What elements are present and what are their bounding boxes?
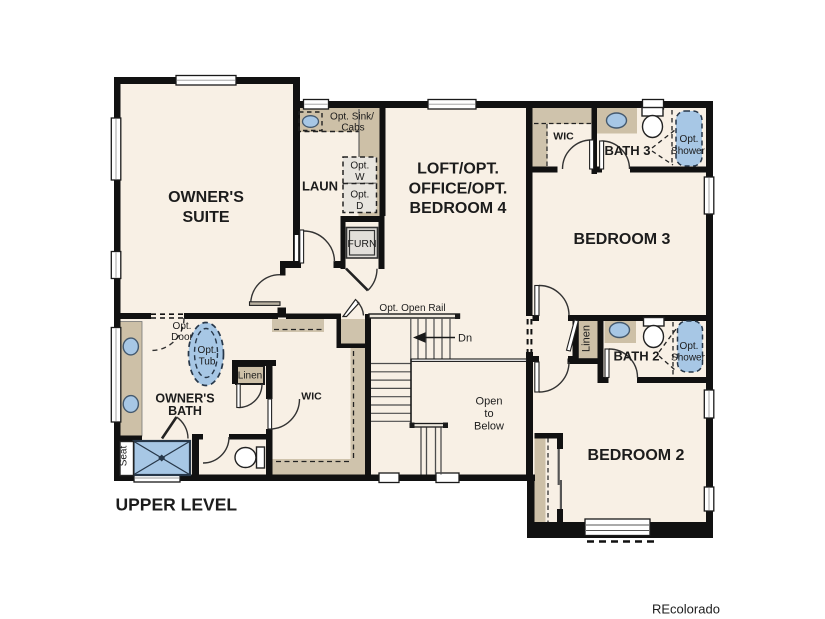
svg-text:Cabs: Cabs — [341, 123, 364, 134]
svg-text:Door: Door — [171, 332, 193, 343]
svg-text:UPPER LEVEL: UPPER LEVEL — [116, 495, 238, 515]
svg-text:Shower: Shower — [671, 353, 706, 364]
svg-text:D: D — [356, 201, 363, 212]
svg-text:WIC: WIC — [553, 131, 574, 143]
svg-text:BATH: BATH — [168, 404, 202, 418]
svg-text:Below: Below — [474, 421, 504, 433]
svg-text:SUITE: SUITE — [182, 209, 229, 226]
svg-text:Open: Open — [476, 396, 503, 408]
svg-text:Opt.: Opt. — [350, 190, 369, 201]
svg-text:Linen: Linen — [581, 325, 593, 352]
svg-text:Opt.: Opt. — [680, 134, 699, 145]
svg-text:Seat: Seat — [119, 445, 130, 466]
svg-text:Opt. Open Rail: Opt. Open Rail — [379, 303, 445, 314]
svg-text:BEDROOM 2: BEDROOM 2 — [588, 447, 685, 464]
svg-text:Opt.: Opt. — [680, 341, 699, 352]
svg-text:to: to — [484, 408, 493, 420]
svg-text:REcolorado: REcolorado — [652, 602, 720, 617]
svg-text:W: W — [355, 172, 365, 183]
svg-text:OFFICE/OPT.: OFFICE/OPT. — [409, 181, 508, 198]
svg-text:Opt.: Opt. — [173, 321, 192, 332]
svg-text:Opt.: Opt. — [198, 345, 217, 356]
svg-text:FURN: FURN — [347, 238, 376, 250]
svg-text:BEDROOM 4: BEDROOM 4 — [410, 200, 507, 217]
svg-text:Shower: Shower — [671, 146, 706, 157]
svg-text:LAUN: LAUN — [302, 179, 338, 194]
svg-text:Linen: Linen — [238, 371, 262, 382]
svg-text:BATH 2: BATH 2 — [614, 349, 660, 364]
svg-text:Tub: Tub — [199, 357, 216, 368]
svg-text:OWNER'S: OWNER'S — [168, 189, 244, 206]
svg-text:Opt.: Opt. — [350, 161, 369, 172]
svg-text:LOFT/OPT.: LOFT/OPT. — [417, 161, 499, 178]
svg-text:Opt. Sink/: Opt. Sink/ — [330, 112, 374, 123]
svg-text:BEDROOM 3: BEDROOM 3 — [574, 231, 671, 248]
svg-text:Dn: Dn — [458, 333, 472, 345]
svg-text:BATH 3: BATH 3 — [605, 143, 651, 158]
svg-text:WIC: WIC — [301, 391, 322, 403]
